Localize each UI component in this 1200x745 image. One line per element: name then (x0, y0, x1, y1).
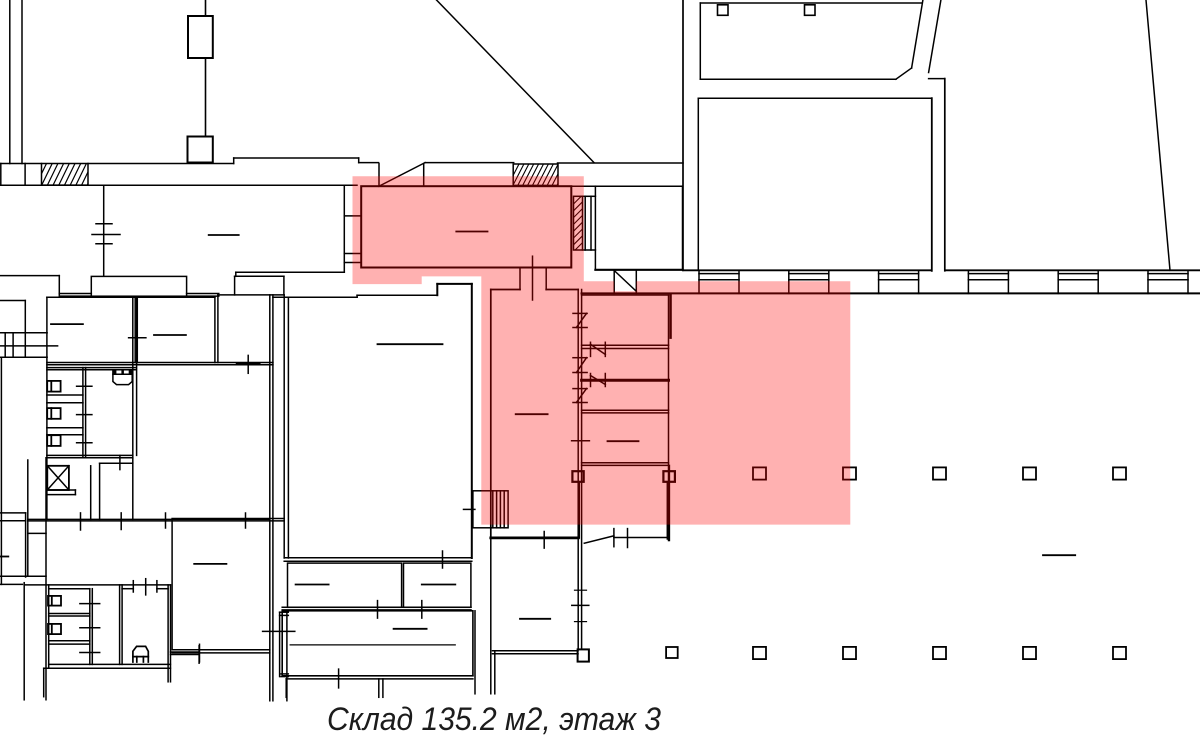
svg-text:Склад 135.2 м2, этаж 3: Склад 135.2 м2, этаж 3 (327, 701, 661, 737)
